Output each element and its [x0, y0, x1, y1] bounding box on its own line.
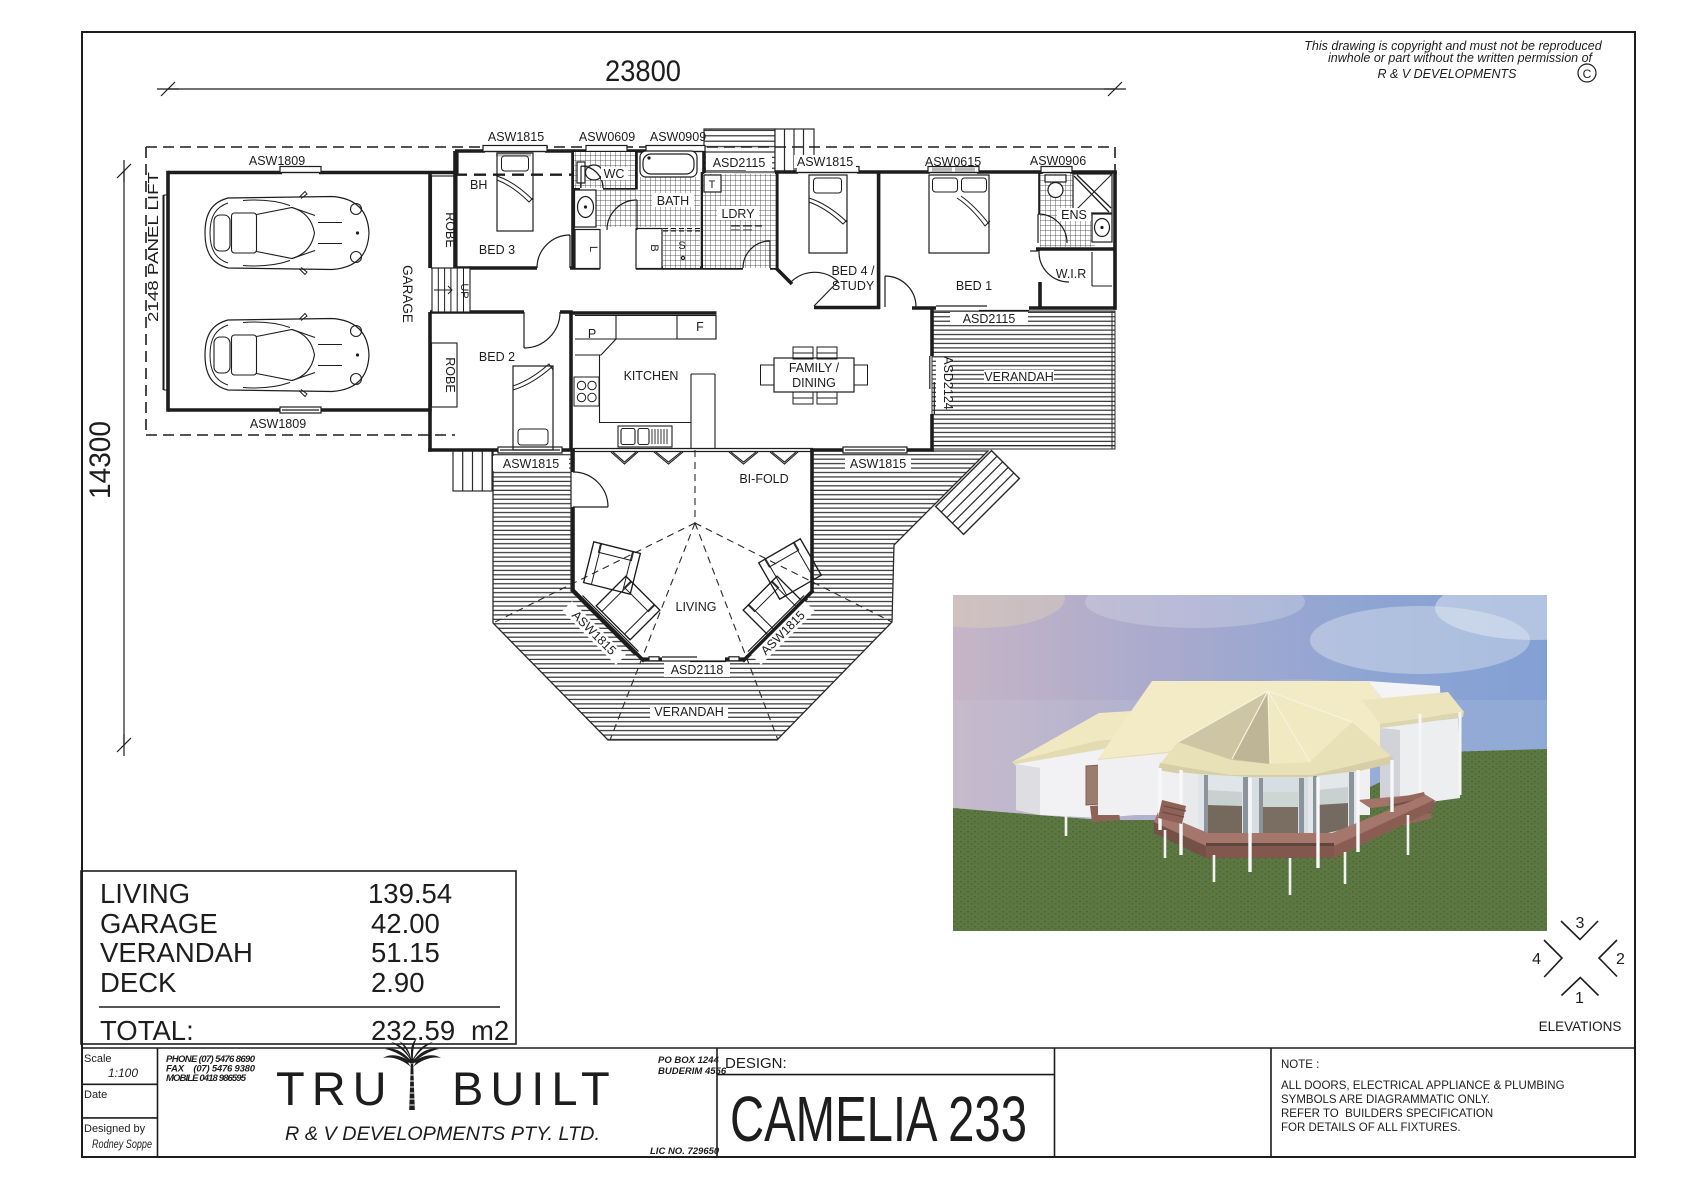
- svg-text:C: C: [1583, 67, 1592, 81]
- svg-text:SYMBOLS ARE DIAGRAMMATIC ONLY.: SYMBOLS ARE DIAGRAMMATIC ONLY.: [1281, 1094, 1490, 1106]
- svg-text:ASW0906: ASW0906: [1030, 154, 1086, 168]
- svg-text:BED 4 /: BED 4 /: [831, 264, 875, 278]
- svg-text:ASW0909: ASW0909: [650, 130, 706, 144]
- svg-text:NOTE :: NOTE :: [1281, 1059, 1319, 1071]
- svg-text:UP: UP: [458, 283, 470, 298]
- svg-text:ASW0609: ASW0609: [579, 130, 635, 144]
- svg-text:2: 2: [1616, 951, 1625, 968]
- svg-text:Designed by: Designed by: [84, 1123, 146, 1135]
- svg-text:ASD2118: ASD2118: [671, 663, 724, 677]
- svg-text:VERANDAH: VERANDAH: [654, 705, 723, 719]
- svg-text:LIVING: LIVING: [676, 600, 717, 614]
- svg-text:S: S: [678, 240, 685, 252]
- svg-text:14300: 14300: [84, 421, 117, 499]
- svg-text:BUDERIM 4556: BUDERIM 4556: [658, 1066, 727, 1077]
- svg-text:REFER TO BUILDERS SPECIFICATI: REFER TO BUILDERS SPECIFICATION: [1281, 1108, 1493, 1120]
- svg-text:ALL DOORS, ELECTRICAL APPLIANC: ALL DOORS, ELECTRICAL APPLIANCE & PLUMBI…: [1281, 1080, 1565, 1092]
- svg-text:DINING: DINING: [792, 376, 836, 390]
- svg-text:GARAGE: GARAGE: [100, 908, 218, 939]
- svg-text:ELEVATIONS: ELEVATIONS: [1539, 1019, 1622, 1034]
- svg-text:23800: 23800: [605, 55, 681, 88]
- svg-text:DESIGN:: DESIGN:: [725, 1055, 787, 1072]
- svg-text:m2: m2: [471, 1015, 509, 1046]
- svg-text:1:100: 1:100: [108, 1066, 138, 1080]
- svg-text:CAMELIA 233: CAMELIA 233: [730, 1083, 1027, 1155]
- svg-text:TRU: TRU: [276, 1062, 394, 1115]
- svg-text:Rodney Soppe: Rodney Soppe: [92, 1137, 152, 1151]
- svg-text:R & V DEVELOPMENTS PTY. LTD.: R & V DEVELOPMENTS PTY. LTD.: [285, 1124, 600, 1145]
- svg-text:ASD2115: ASD2115: [963, 312, 1016, 326]
- svg-text:LIC NO. 729650: LIC NO. 729650: [650, 1146, 720, 1157]
- svg-text:GARAGE: GARAGE: [400, 265, 415, 323]
- svg-text:VERANDAH: VERANDAH: [100, 937, 253, 968]
- svg-text:139.54: 139.54: [368, 878, 452, 909]
- svg-text:BH: BH: [470, 178, 487, 192]
- svg-text:42.00: 42.00: [371, 908, 440, 939]
- svg-text:R & V DEVELOPMENTS: R & V DEVELOPMENTS: [1378, 67, 1518, 81]
- svg-text:2.90: 2.90: [371, 967, 425, 998]
- svg-text:W.I.R: W.I.R: [1056, 267, 1087, 281]
- svg-text:LDRY: LDRY: [721, 207, 755, 221]
- svg-text:ROBE: ROBE: [443, 212, 457, 247]
- svg-text:B: B: [648, 244, 660, 251]
- svg-text:WC: WC: [604, 167, 625, 181]
- svg-text:ASW1815: ASW1815: [850, 457, 906, 471]
- svg-text:ROBE: ROBE: [443, 357, 457, 392]
- svg-text:BED 3: BED 3: [479, 243, 515, 257]
- svg-text:P: P: [588, 327, 596, 341]
- svg-text:Date: Date: [84, 1089, 107, 1101]
- svg-text:ASD2124: ASD2124: [941, 356, 955, 410]
- svg-text:FOR DETAILS OF ALL FIXTURES.: FOR DETAILS OF ALL FIXTURES.: [1281, 1122, 1461, 1134]
- svg-text:L: L: [587, 246, 599, 252]
- svg-text:51.15: 51.15: [371, 937, 440, 968]
- svg-text:BATH: BATH: [657, 194, 689, 208]
- svg-text:3: 3: [1576, 915, 1585, 932]
- svg-text:ASW1815: ASW1815: [488, 130, 544, 144]
- svg-text:ASW1809: ASW1809: [250, 417, 306, 431]
- svg-text:Scale: Scale: [84, 1053, 112, 1065]
- svg-text:BUILT: BUILT: [452, 1062, 617, 1115]
- svg-text:LIVING: LIVING: [100, 878, 190, 909]
- svg-text:232.59: 232.59: [371, 1015, 455, 1046]
- svg-text:DECK: DECK: [100, 967, 177, 998]
- svg-text:4: 4: [1532, 951, 1541, 968]
- svg-text:2148 PANEL LIFT: 2148 PANEL LIFT: [146, 172, 162, 322]
- svg-text:BED 1: BED 1: [956, 279, 992, 293]
- svg-text:ASD2115: ASD2115: [713, 156, 766, 170]
- svg-text:ASW1809: ASW1809: [249, 154, 305, 168]
- svg-text:BI-FOLD: BI-FOLD: [739, 472, 788, 486]
- svg-text:STUDY: STUDY: [832, 279, 875, 293]
- svg-text:F: F: [696, 320, 704, 334]
- svg-text:1: 1: [1575, 990, 1584, 1007]
- svg-text:ASW1815: ASW1815: [503, 457, 559, 471]
- svg-text:BED 2: BED 2: [479, 350, 515, 364]
- svg-text:ENS: ENS: [1061, 208, 1087, 222]
- svg-text:VERANDAH: VERANDAH: [984, 370, 1053, 384]
- svg-text:FAMILY /: FAMILY /: [789, 361, 840, 375]
- svg-text:ASW1815: ASW1815: [797, 155, 853, 169]
- svg-text:ASW0615: ASW0615: [925, 155, 981, 169]
- svg-text:T: T: [709, 179, 716, 191]
- svg-text:PO BOX 1244: PO BOX 1244: [658, 1055, 719, 1066]
- svg-text:TOTAL:: TOTAL:: [100, 1015, 194, 1046]
- svg-text:inwhole or part without the wr: inwhole or part without the written perm…: [1328, 51, 1594, 65]
- svg-text:KITCHEN: KITCHEN: [624, 369, 679, 383]
- svg-text:MOBILE 0418 986595: MOBILE 0418 986595: [166, 1073, 247, 1084]
